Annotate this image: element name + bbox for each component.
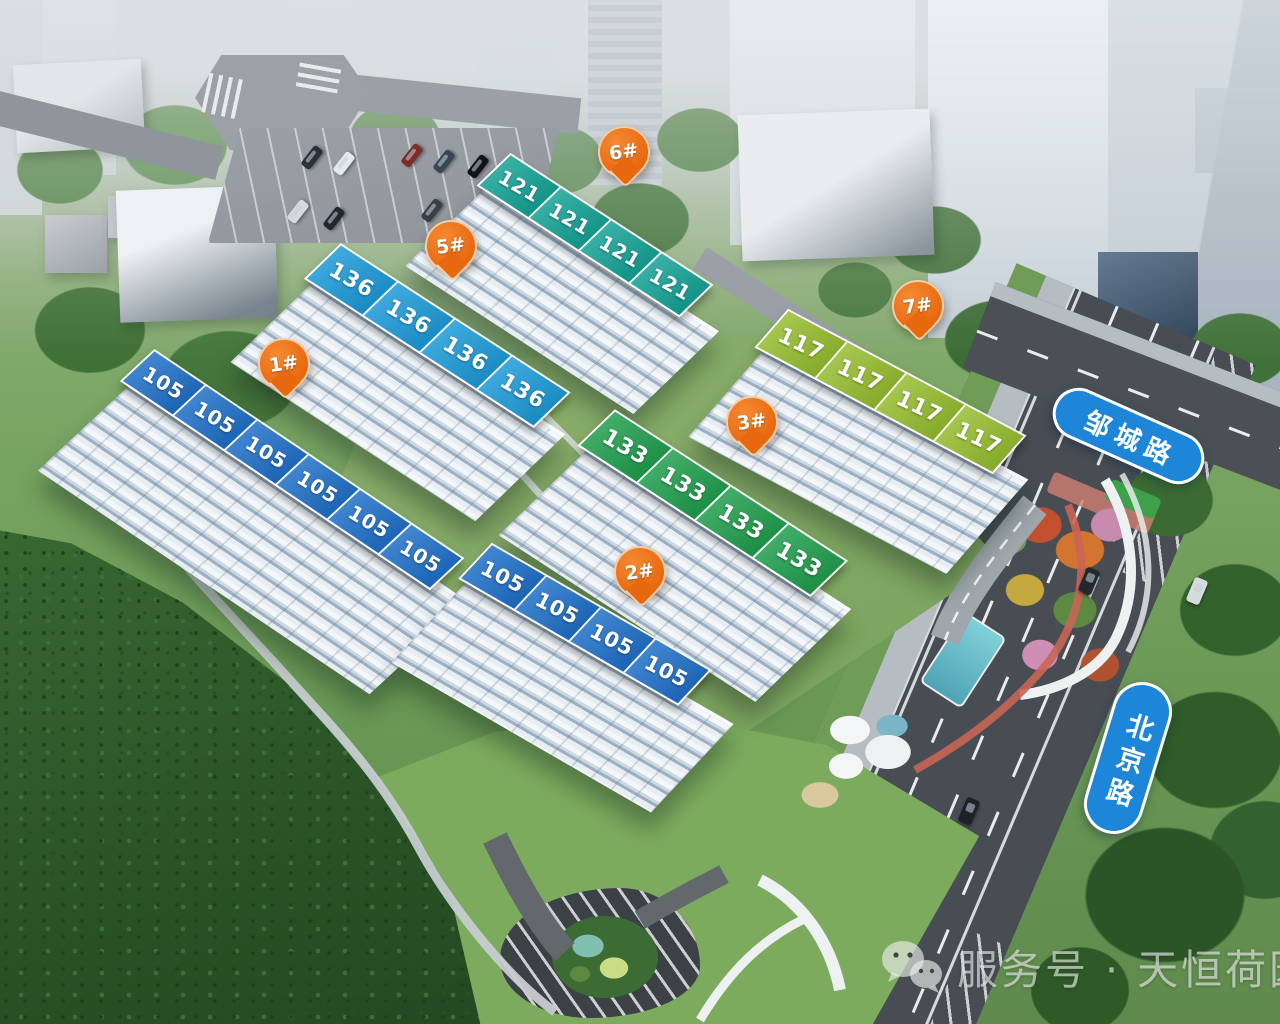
wechat-icon — [880, 938, 944, 994]
watermark-text: 服务号 · 天恒荷园 — [957, 936, 1280, 996]
playground-area — [800, 700, 980, 820]
marker-building-7: 7# — [892, 280, 944, 332]
marker-label: 7# — [902, 293, 934, 319]
marker-label: 5# — [435, 233, 467, 259]
residential-site-aerial-rendering: 121121121121 136136136136 117117117117 1… — [0, 0, 1280, 1024]
warehouse-large — [738, 109, 935, 262]
marker-label: 2# — [624, 559, 656, 585]
marker-label: 1# — [268, 351, 300, 377]
marker-building-3: 3# — [726, 396, 778, 448]
marker-label: 3# — [736, 409, 768, 435]
marker-label: 6# — [608, 139, 640, 165]
marker-building-1: 1# — [258, 338, 310, 390]
marker-building-6: 6# — [598, 126, 650, 178]
south-garden-island — [552, 916, 658, 998]
wechat-watermark: 服务号 · 天恒荷园 — [880, 936, 1280, 996]
marker-building-2: 2# — [614, 546, 666, 598]
warehouse — [45, 215, 107, 273]
marker-building-5: 5# — [425, 220, 477, 272]
